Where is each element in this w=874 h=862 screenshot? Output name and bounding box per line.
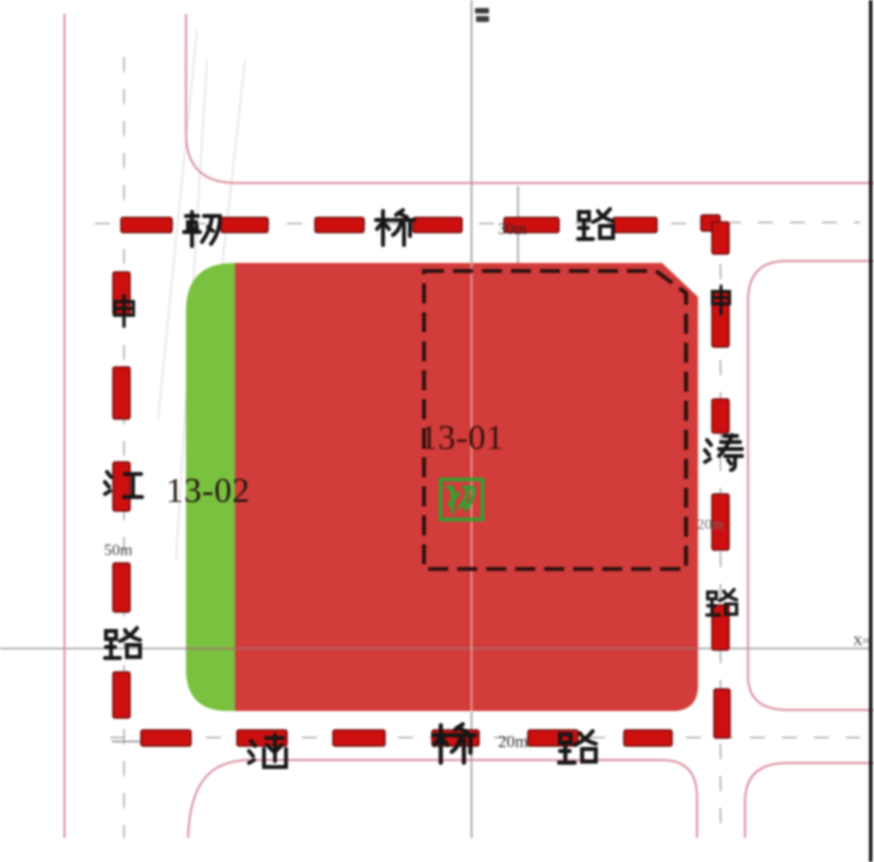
svg-text:50m: 50m (104, 542, 133, 559)
svg-text:20m: 20m (498, 732, 528, 751)
svg-text:X=: X= (853, 633, 870, 648)
svg-text:13-01: 13-01 (420, 418, 504, 457)
svg-text:13-02: 13-02 (166, 471, 250, 510)
svg-text:20m: 20m (697, 517, 724, 533)
svg-text:30m: 30m (498, 221, 527, 238)
